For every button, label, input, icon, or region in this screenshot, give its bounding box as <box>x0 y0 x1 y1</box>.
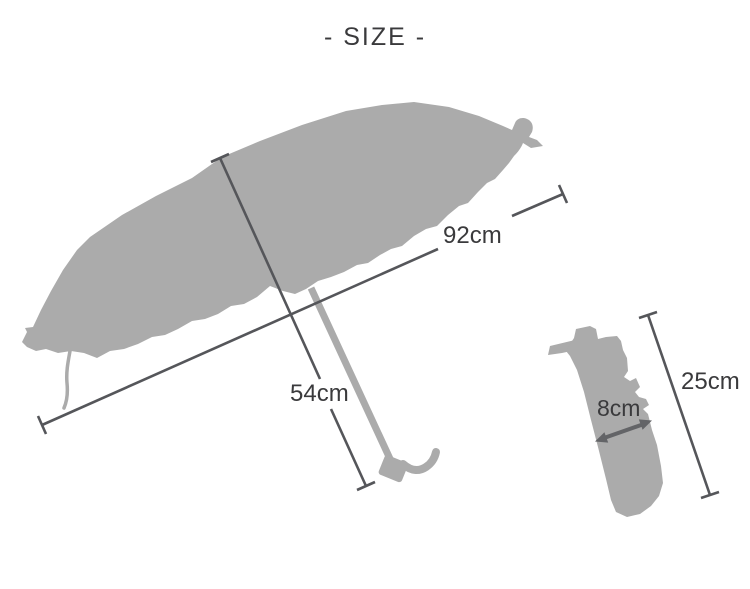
open-umbrella-illustration <box>22 102 543 483</box>
size-diagram: - SIZE - <box>0 0 750 589</box>
diagram-canvas <box>0 0 750 589</box>
umbrella-shaft <box>311 288 391 461</box>
folded-length-label: 25cm <box>681 370 740 394</box>
umbrella-handle-hook <box>403 452 436 470</box>
umbrella-handle <box>378 454 409 483</box>
umbrella-tie-strap <box>64 351 70 408</box>
canopy-width-label: 92cm <box>443 224 502 248</box>
folded-width-label: 8cm <box>597 397 640 420</box>
umbrella-height-label: 54cm <box>290 382 349 406</box>
